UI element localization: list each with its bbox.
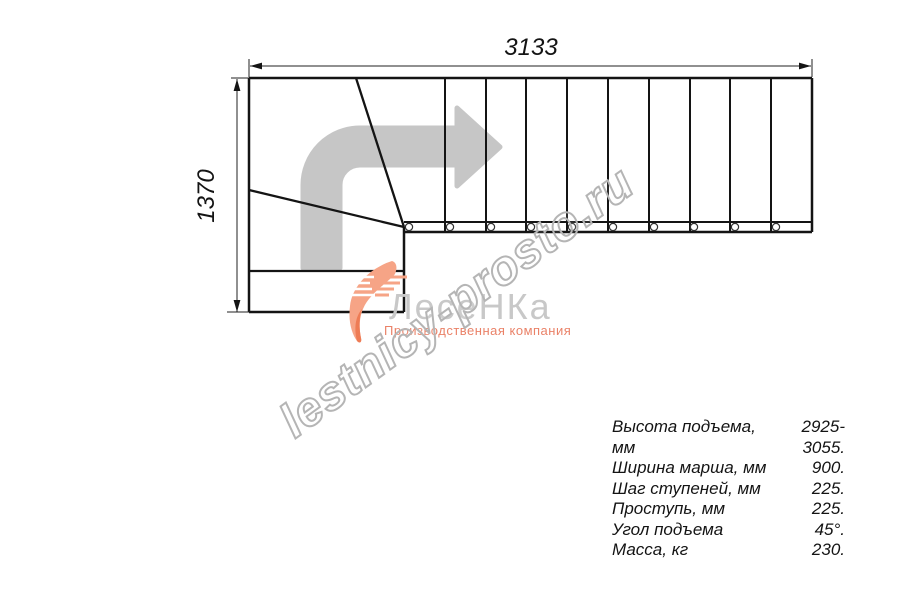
stair-plan-drawing: 3133 1370 ЛесеНКа Производственная компа…	[0, 0, 900, 600]
